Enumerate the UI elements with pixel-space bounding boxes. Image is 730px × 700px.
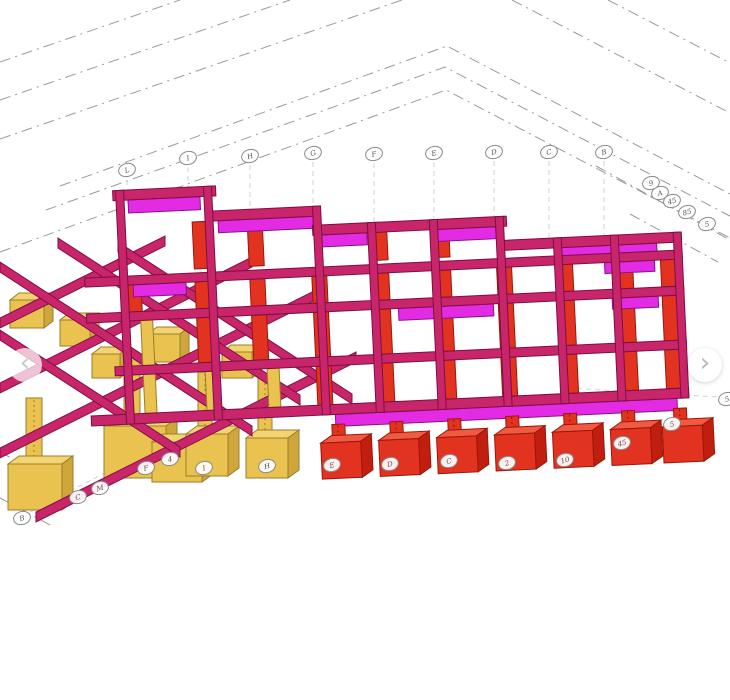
grid-bubble-edge: 5 (717, 391, 730, 408)
grid-bubble-right_cluster: 85 (677, 204, 697, 221)
chevron-right-icon: › (700, 350, 710, 376)
grid-bubble-top: B (594, 144, 614, 161)
3d-structural-model-canvas[interactable]: LIHGFEDCB9A45855BCMF4IHEDC2104555 (0, 0, 730, 700)
grid-bubble-bottom: B (12, 510, 32, 527)
grid-bubble-top: F (364, 146, 384, 163)
chevron-left-icon: ‹ (20, 350, 30, 376)
grid-bubble-top: I (178, 150, 198, 167)
model-viewer-stage: LIHGFEDCB9A45855BCMF4IHEDC2104555 ‹ › (0, 0, 730, 700)
grid-bubble-top: D (484, 144, 504, 161)
carousel-next-button[interactable]: › (688, 348, 722, 382)
grid-bubble-top: C (539, 144, 559, 161)
grid-bubble-top: H (240, 148, 260, 165)
grid-bubble-top: G (303, 145, 323, 162)
carousel-previous-button[interactable]: ‹ (8, 348, 42, 382)
grid-bubble-top: E (424, 145, 444, 162)
